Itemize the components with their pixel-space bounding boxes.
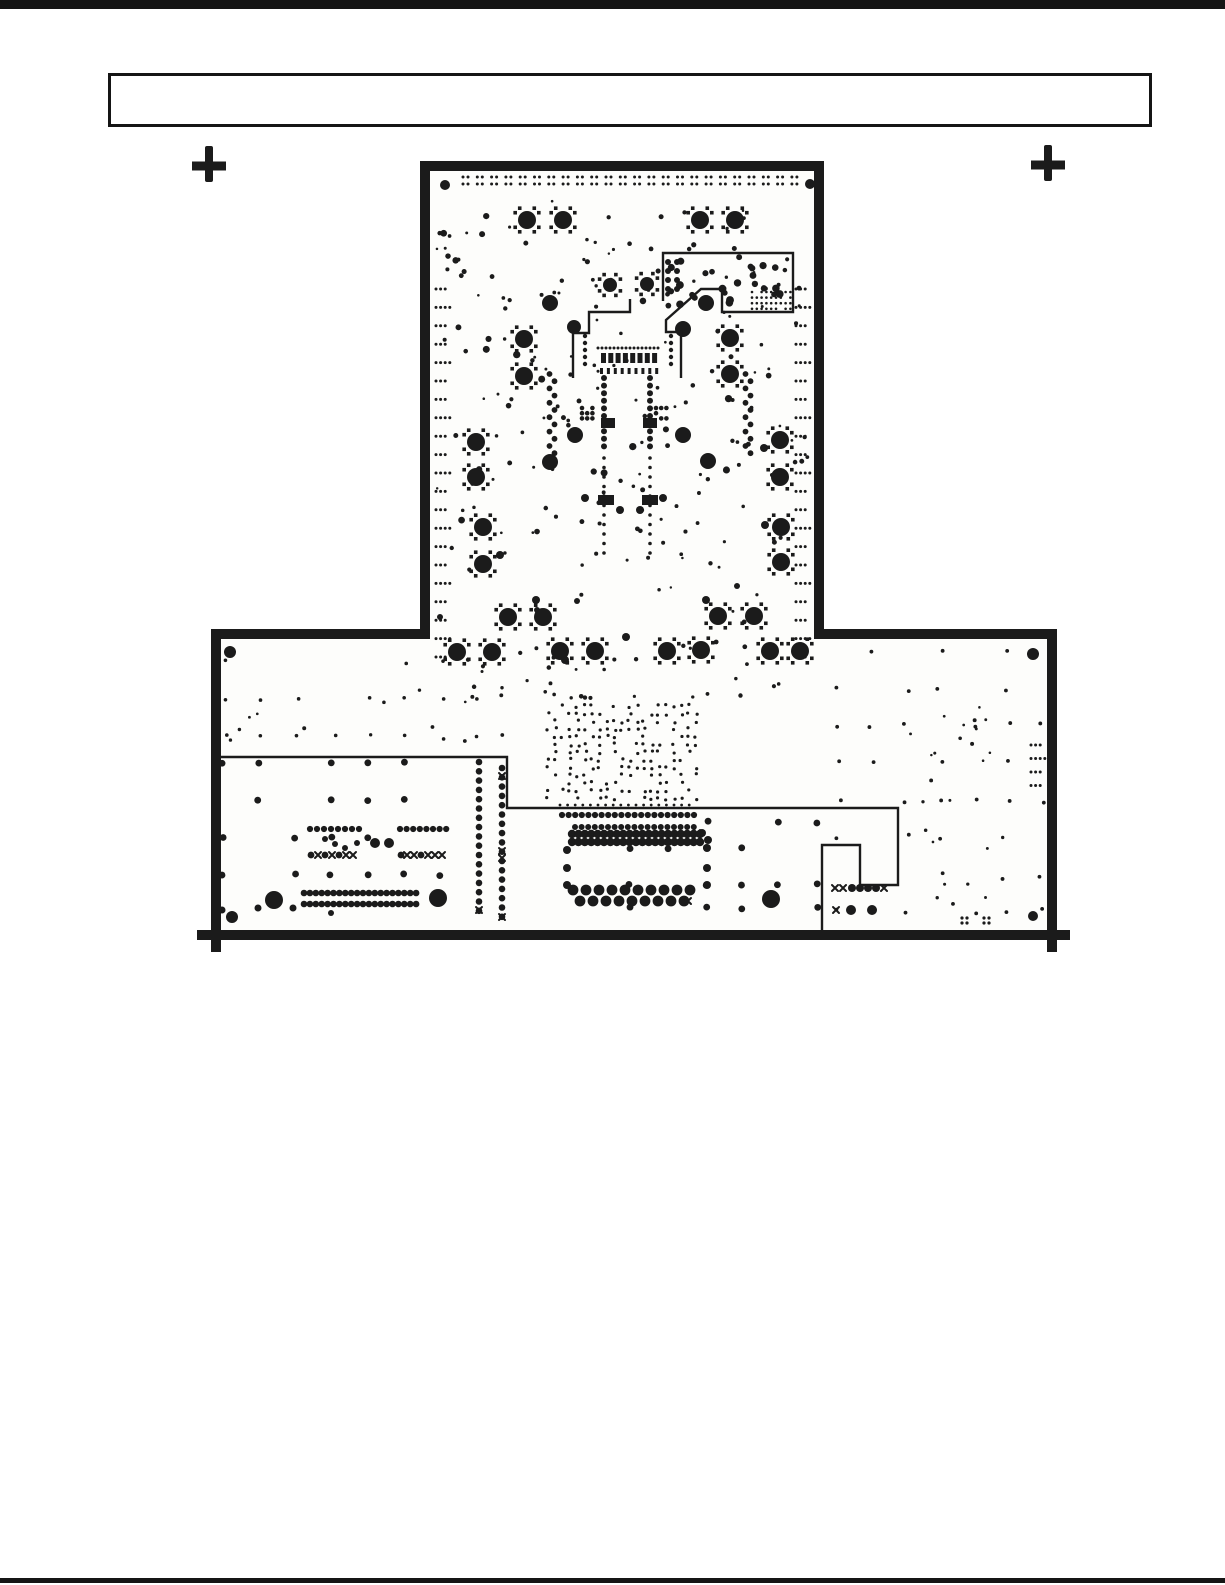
registration-cross-right — [1031, 145, 1065, 181]
figure-title-box — [108, 73, 1152, 127]
pcb-layer-svg — [0, 0, 1225, 1585]
bottom-rule — [0, 1578, 1225, 1583]
registration-cross-left — [192, 146, 226, 182]
document-page — [0, 0, 1225, 1585]
figure-title-text — [111, 76, 1149, 88]
